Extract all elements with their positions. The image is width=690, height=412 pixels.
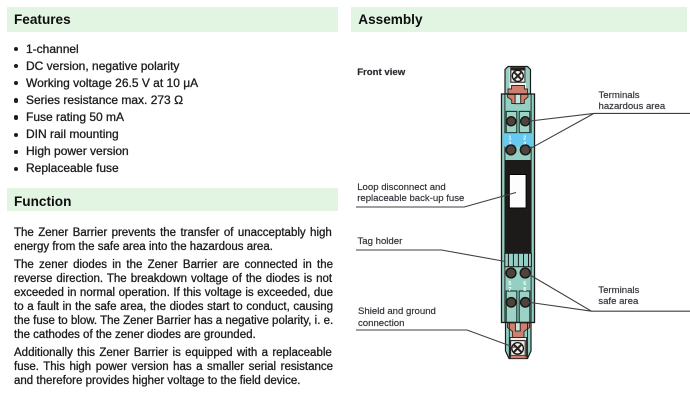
svg-text:8: 8 xyxy=(523,287,526,293)
svg-text:7: 7 xyxy=(508,287,511,293)
